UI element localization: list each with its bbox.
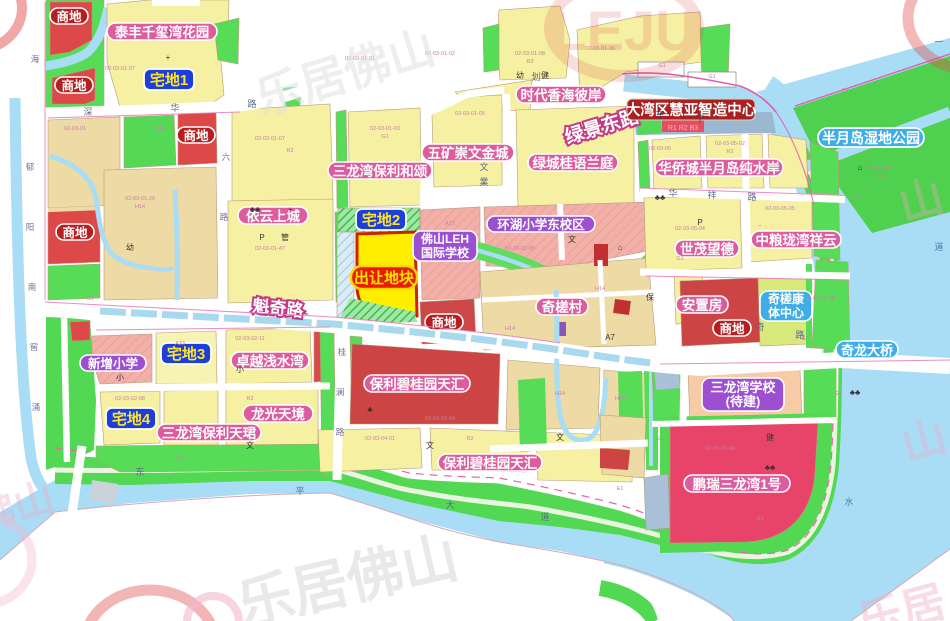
svg-text:澜: 澜 — [336, 387, 345, 397]
svg-text:安置房: 安置房 — [682, 297, 723, 313]
svg-text:东: 东 — [135, 466, 144, 477]
svg-text:G1: G1 — [676, 256, 683, 262]
svg-text:路: 路 — [247, 98, 256, 109]
svg-text:(待建): (待建) — [726, 394, 761, 409]
svg-text:02-03-02-04: 02-03-02-04 — [425, 416, 455, 422]
svg-text:H14: H14 — [615, 396, 625, 402]
svg-text:宅地3: 宅地3 — [167, 345, 205, 363]
svg-text:E9: E9 — [842, 88, 849, 94]
svg-text:宅地1: 宅地1 — [150, 71, 188, 89]
svg-text:LEJU: LEJU — [552, 0, 695, 62]
svg-text:02-03-05-08: 02-03-05-08 — [805, 296, 835, 302]
svg-text:小: 小 — [236, 365, 244, 374]
svg-text:R2: R2 — [466, 436, 473, 442]
svg-text:文: 文 — [426, 440, 434, 450]
svg-text:幼: 幼 — [516, 70, 524, 80]
svg-text:健: 健 — [541, 70, 549, 80]
svg-text:绿城桂语兰庭: 绿城桂语兰庭 — [533, 155, 614, 171]
svg-text:02-03-01: 02-03-01 — [64, 126, 86, 132]
svg-text:G1: G1 — [801, 336, 808, 342]
svg-text:水: 水 — [844, 496, 853, 507]
svg-text:R1 R2 B3: R1 R2 B3 — [668, 125, 698, 132]
svg-text:保利碧桂园天汇: 保利碧桂园天汇 — [442, 455, 538, 471]
svg-text:华侨城半月岛纯水岸: 华侨城半月岛纯水岸 — [658, 160, 780, 176]
svg-text:02-03-02-05: 02-03-02-05 — [505, 246, 535, 252]
svg-text:文: 文 — [246, 440, 254, 450]
svg-text:出让地块: 出让地块 — [354, 269, 415, 287]
svg-text:幼: 幼 — [126, 242, 134, 252]
svg-text:G1: G1 — [381, 134, 388, 140]
svg-text:02-03-01-07: 02-03-01-07 — [105, 66, 135, 72]
svg-text:路: 路 — [220, 212, 229, 222]
svg-text:H14: H14 — [595, 286, 605, 292]
svg-text:G1: G1 — [834, 391, 841, 397]
svg-text:时代香海彼岸: 时代香海彼岸 — [521, 87, 602, 103]
svg-text:环湖小学东校区: 环湖小学东校区 — [497, 217, 585, 232]
svg-text:02-03-01-07: 02-03-01-07 — [255, 136, 285, 142]
svg-text:商地: 商地 — [61, 78, 87, 93]
svg-text:G1: G1 — [756, 516, 763, 522]
svg-text:H14: H14 — [505, 326, 515, 332]
svg-text:龙光天境: 龙光天境 — [250, 406, 305, 422]
svg-text:五矿崇文金城: 五矿崇文金城 — [428, 145, 509, 161]
svg-text:平: 平 — [295, 486, 304, 496]
svg-text:A7: A7 — [605, 333, 615, 342]
svg-text:窖: 窖 — [30, 342, 39, 352]
svg-text:02-03-04-01: 02-03-04-01 — [365, 436, 395, 442]
svg-text:02-03-05: 02-03-05 — [649, 146, 671, 152]
svg-text:⌂: ⌂ — [858, 163, 863, 172]
svg-text:R2: R2 — [286, 148, 293, 154]
svg-text:涌: 涌 — [32, 402, 41, 412]
svg-text:保利碧桂园天汇: 保利碧桂园天汇 — [369, 376, 465, 392]
svg-text:02-03-01-05: 02-03-01-05 — [455, 111, 485, 117]
svg-text:海: 海 — [31, 54, 40, 64]
svg-text:02-03-02-08: 02-03-02-08 — [115, 396, 145, 402]
svg-text:新增小学: 新增小学 — [88, 356, 139, 371]
svg-text:半月岛湿地公园: 半月岛湿地公园 — [822, 130, 920, 146]
svg-text:+: + — [166, 53, 171, 62]
svg-text:东: 东 — [655, 109, 664, 120]
svg-text:奇: 奇 — [755, 321, 764, 332]
svg-text:+: + — [288, 205, 293, 214]
svg-text:02-03-05-02: 02-03-05-02 — [715, 141, 745, 147]
svg-text:E1: E1 — [617, 486, 624, 492]
svg-text:H14: H14 — [155, 126, 165, 132]
svg-text:南: 南 — [28, 282, 37, 292]
svg-text:A33: A33 — [175, 341, 185, 347]
svg-text:桂: 桂 — [338, 347, 347, 357]
svg-text:深: 深 — [83, 107, 92, 117]
svg-text:道: 道 — [934, 241, 943, 252]
svg-text:划: 划 — [531, 71, 540, 82]
svg-text:体中心: 体中心 — [768, 305, 804, 320]
svg-text:R2: R2 — [526, 59, 533, 65]
svg-text:平: 平 — [695, 114, 704, 124]
svg-text:文: 文 — [568, 234, 576, 244]
svg-text:H14: H14 — [135, 204, 145, 210]
svg-text:⌂: ⌂ — [166, 28, 171, 37]
svg-text:02-03-03-04: 02-03-03-04 — [705, 446, 735, 452]
svg-text:♣♣: ♣♣ — [250, 205, 261, 214]
svg-text:E1: E1 — [657, 436, 664, 442]
svg-text:鹏瑞三龙湾1号: 鹏瑞三龙湾1号 — [693, 476, 782, 492]
svg-text:华: 华 — [170, 102, 179, 113]
svg-text:小: 小 — [116, 373, 124, 382]
svg-text:阳: 阳 — [26, 222, 35, 232]
svg-text:♣♣: ♣♣ — [850, 388, 861, 397]
svg-text:02-03-02-11: 02-03-02-11 — [235, 336, 265, 342]
svg-text:一: 一 — [934, 37, 943, 47]
svg-text:P: P — [259, 233, 264, 242]
svg-text:大: 大 — [445, 499, 454, 510]
svg-text:02-03-05-05: 02-03-05-05 — [765, 206, 795, 212]
svg-text:R2: R2 — [246, 396, 253, 402]
svg-text:郁: 郁 — [26, 162, 35, 172]
svg-text:佛山LEH: 佛山LEH — [420, 231, 469, 246]
svg-text:中粮珑湾祥云: 中粮珑湾祥云 — [756, 232, 837, 248]
svg-text:02-03-01-29: 02-03-01-29 — [125, 196, 155, 202]
svg-text:奇龙大桥: 奇龙大桥 — [841, 343, 894, 358]
svg-text:業: 業 — [479, 176, 488, 187]
svg-text:宅地2: 宅地2 — [362, 211, 400, 229]
svg-text:商地: 商地 — [183, 128, 209, 143]
svg-text:宅地4: 宅地4 — [112, 410, 151, 428]
svg-text:国际学校: 国际学校 — [421, 245, 470, 260]
svg-text:三龙湾保利天珺: 三龙湾保利天珺 — [162, 425, 257, 441]
svg-text:商地: 商地 — [56, 9, 82, 24]
svg-text:三龙湾学校: 三龙湾学校 — [710, 380, 776, 395]
svg-text:G1: G1 — [86, 296, 93, 302]
svg-text:管: 管 — [281, 232, 289, 242]
svg-text:G1: G1 — [176, 456, 183, 462]
svg-text:02-03-06-01: 02-03-06-01 — [865, 166, 895, 172]
svg-text:泰丰千玺湾花园: 泰丰千玺湾花园 — [114, 24, 210, 40]
svg-text:保: 保 — [646, 292, 654, 302]
svg-text:A33: A33 — [445, 221, 455, 227]
svg-text:六: 六 — [222, 152, 231, 162]
svg-text:路: 路 — [336, 427, 345, 437]
svg-text:R2: R2 — [726, 149, 733, 155]
svg-text:文: 文 — [556, 432, 564, 442]
svg-text:文: 文 — [479, 161, 488, 172]
svg-text:奇槎康: 奇槎康 — [768, 291, 805, 306]
svg-text:G1: G1 — [708, 74, 715, 80]
svg-text:健: 健 — [766, 432, 774, 442]
svg-text:大湾区慧亚智造中心: 大湾区慧亚智造中心 — [626, 101, 757, 119]
svg-text:奇槎村: 奇槎村 — [542, 299, 583, 315]
svg-text:世茂望德: 世茂望德 — [680, 241, 734, 257]
svg-text:道: 道 — [540, 511, 549, 522]
svg-text:.: . — [759, 219, 761, 228]
svg-text:⌂: ⌂ — [618, 243, 623, 252]
svg-text:商地: 商地 — [719, 321, 745, 336]
svg-text:02-03-01-47: 02-03-01-47 — [255, 246, 285, 252]
svg-text:三龙湾保利和颂: 三龙湾保利和颂 — [333, 163, 428, 179]
svg-text:商地: 商地 — [62, 225, 88, 240]
svg-text:♣: ♣ — [367, 405, 373, 414]
svg-text:02-03-01-08: 02-03-01-08 — [515, 51, 545, 57]
svg-text:H14: H14 — [555, 391, 565, 397]
svg-text:G1: G1 — [876, 174, 883, 180]
svg-text:P: P — [697, 218, 702, 227]
svg-text:卓越浅水湾: 卓越浅水湾 — [236, 353, 304, 369]
svg-text:02-03-01-03: 02-03-01-03 — [370, 126, 400, 132]
svg-text:♣♣: ♣♣ — [655, 193, 666, 202]
svg-text:♣♣: ♣♣ — [765, 463, 776, 472]
